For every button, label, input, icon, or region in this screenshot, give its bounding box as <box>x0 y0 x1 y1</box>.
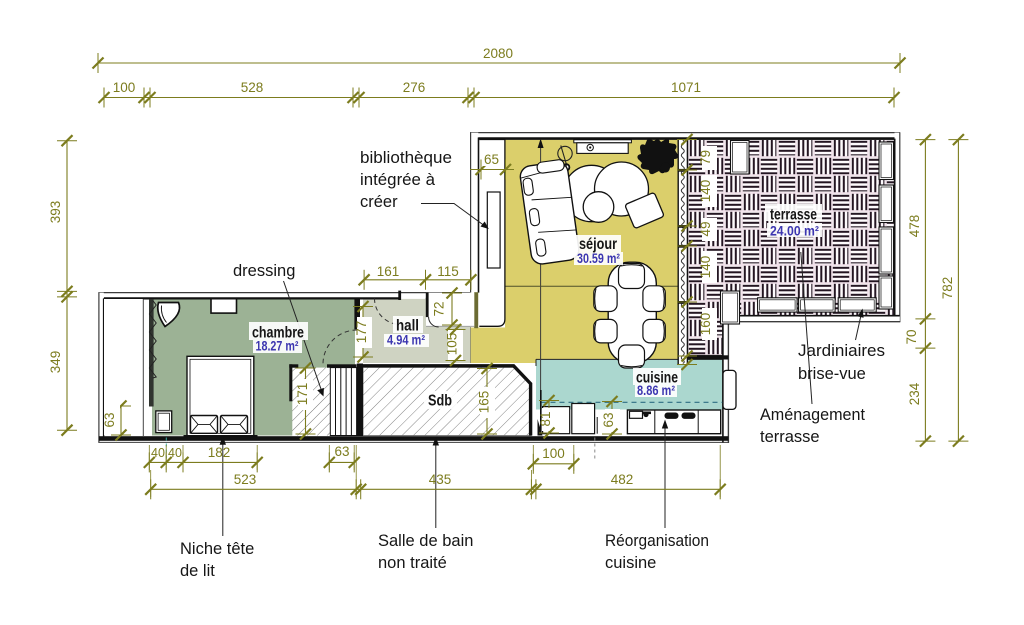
svg-text:234: 234 <box>907 382 922 405</box>
svg-text:dressing: dressing <box>233 262 295 280</box>
svg-text:523: 523 <box>234 472 257 487</box>
svg-text:24.00 m²: 24.00 m² <box>770 224 819 239</box>
svg-text:non traité: non traité <box>378 554 447 572</box>
svg-text:30.59 m²: 30.59 m² <box>577 251 620 266</box>
svg-text:8.86 m²: 8.86 m² <box>637 383 675 398</box>
svg-text:Sdb: Sdb <box>428 393 452 410</box>
svg-text:1071: 1071 <box>671 80 701 95</box>
svg-text:49: 49 <box>698 221 713 236</box>
svg-text:182: 182 <box>208 445 231 460</box>
svg-text:782: 782 <box>940 277 955 300</box>
svg-text:349: 349 <box>48 351 63 374</box>
svg-text:482: 482 <box>611 472 634 487</box>
svg-text:528: 528 <box>241 80 264 95</box>
svg-text:2080: 2080 <box>483 46 513 61</box>
svg-text:393: 393 <box>48 201 63 224</box>
svg-text:18.27 m²: 18.27 m² <box>256 339 299 354</box>
svg-text:Aménagement: Aménagement <box>760 406 865 424</box>
svg-text:brise-vue: brise-vue <box>798 365 866 383</box>
svg-text:100: 100 <box>113 80 136 95</box>
svg-text:105: 105 <box>445 333 460 356</box>
svg-text:70: 70 <box>904 329 919 344</box>
svg-text:intégrée à: intégrée à <box>360 171 436 189</box>
svg-text:177: 177 <box>354 321 369 344</box>
svg-text:165: 165 <box>477 391 492 414</box>
svg-text:63: 63 <box>601 412 616 427</box>
svg-text:115: 115 <box>437 264 459 279</box>
svg-text:435: 435 <box>429 472 452 487</box>
svg-text:40: 40 <box>151 446 165 460</box>
svg-text:Niche tête: Niche tête <box>180 540 254 558</box>
svg-text:bibliothèque: bibliothèque <box>360 149 452 167</box>
svg-text:72: 72 <box>432 301 447 316</box>
svg-text:65: 65 <box>484 152 499 167</box>
svg-text:4.94 m²: 4.94 m² <box>387 333 425 348</box>
svg-text:créer: créer <box>360 193 398 211</box>
svg-text:171: 171 <box>295 383 310 406</box>
svg-text:terrasse: terrasse <box>770 207 817 224</box>
svg-text:140: 140 <box>698 256 713 279</box>
svg-text:276: 276 <box>403 80 426 95</box>
svg-text:79: 79 <box>698 150 713 165</box>
svg-text:terrasse: terrasse <box>760 428 820 446</box>
svg-text:81: 81 <box>538 411 553 426</box>
svg-text:de lit: de lit <box>180 562 215 580</box>
svg-text:Jardiniaires: Jardiniaires <box>798 342 885 360</box>
svg-text:63: 63 <box>334 444 349 459</box>
svg-text:40: 40 <box>168 446 182 460</box>
svg-text:63: 63 <box>102 412 117 427</box>
svg-text:Salle de bain: Salle de bain <box>378 532 473 550</box>
svg-text:cuisine: cuisine <box>605 554 656 572</box>
svg-text:160: 160 <box>698 313 713 336</box>
svg-text:100: 100 <box>542 446 565 461</box>
svg-text:161: 161 <box>377 264 400 279</box>
svg-text:478: 478 <box>907 215 922 238</box>
svg-text:Réorganisation: Réorganisation <box>605 532 709 550</box>
svg-text:140: 140 <box>698 180 713 203</box>
